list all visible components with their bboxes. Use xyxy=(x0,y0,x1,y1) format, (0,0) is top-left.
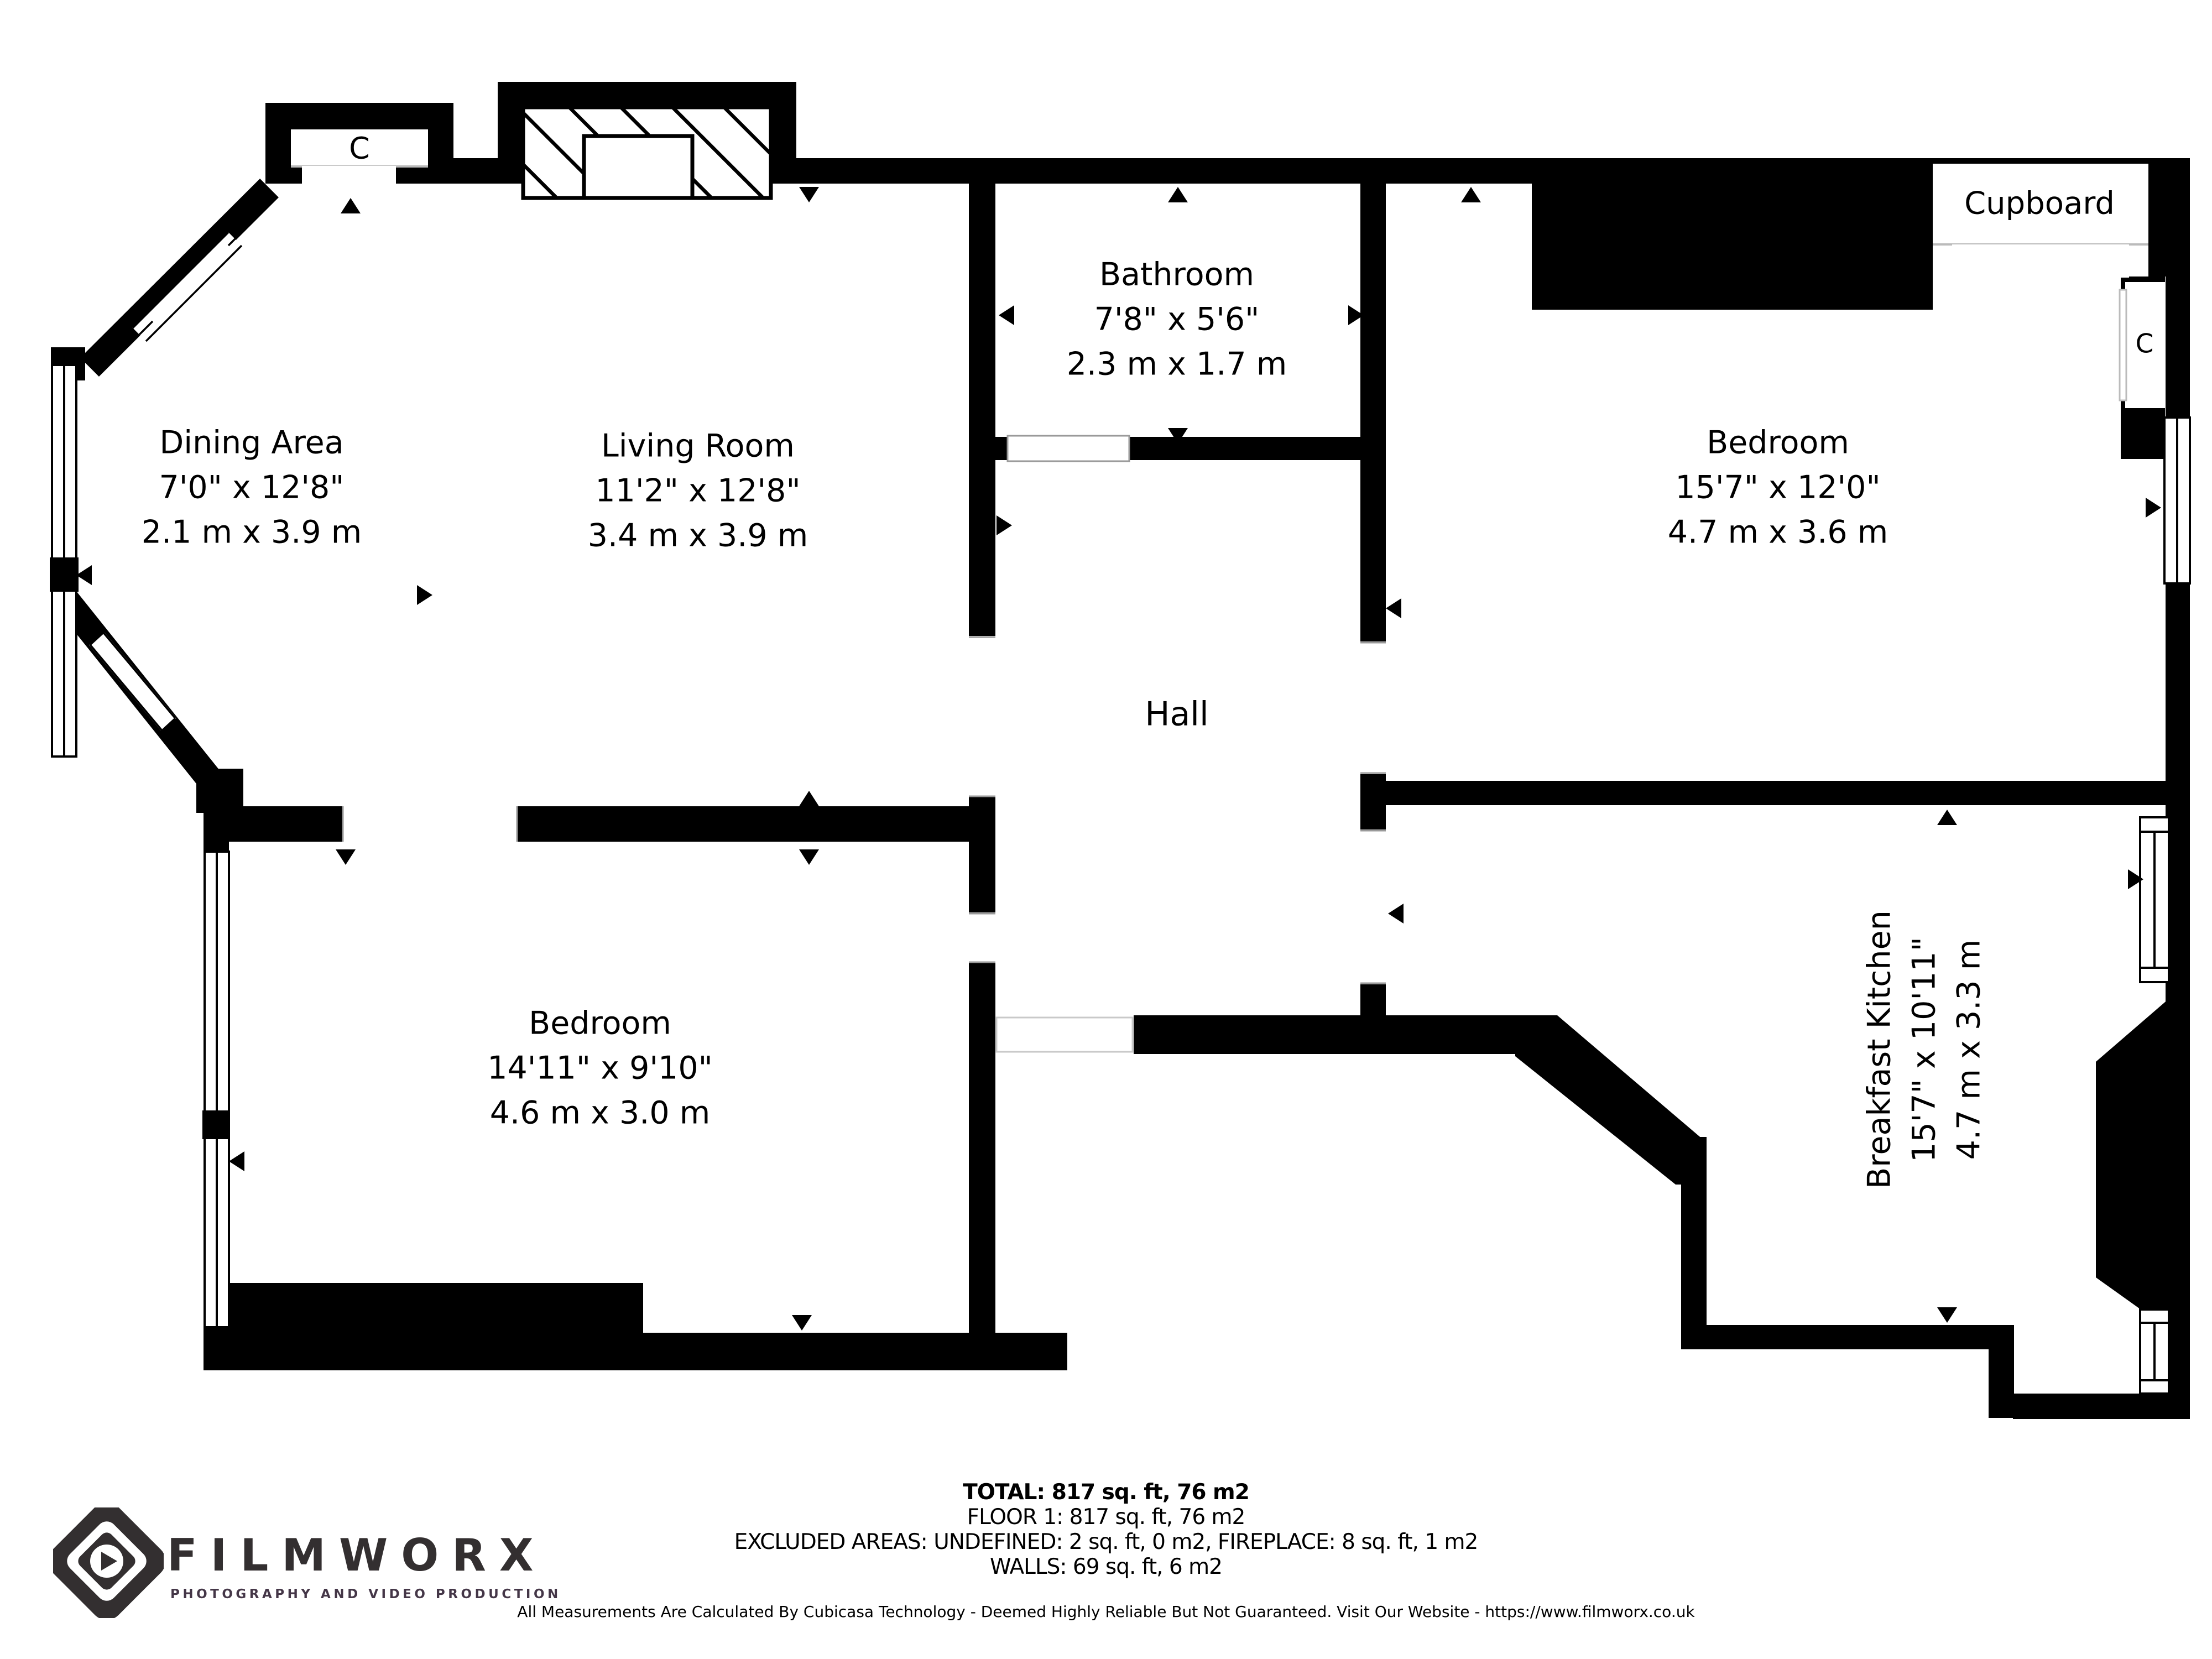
room-name: Living Room xyxy=(588,424,808,469)
bathroom-door xyxy=(1008,436,1129,461)
summary-total: TOTAL: 817 sq. ft, 76 m2 xyxy=(0,1480,2212,1505)
room-dims-m: 2.3 m x 1.7 m xyxy=(1067,342,1287,387)
room-dims-m: 2.1 m x 3.9 m xyxy=(142,510,362,555)
room-label-dining: Dining Area 7'0" x 12'8" 2.1 m x 3.9 m xyxy=(142,421,362,555)
room-dims-ft: 7'8" x 5'6" xyxy=(1067,298,1287,342)
bay-diagonal-window-lower xyxy=(97,639,169,724)
room-name: Dining Area xyxy=(142,421,362,466)
hall-right-wall xyxy=(1360,459,1386,641)
kitchen-diagonal-wall xyxy=(1515,1015,1707,1185)
brand-tagline: PHOTOGRAPHY AND VIDEO PRODUCTION xyxy=(170,1587,561,1601)
bathroom-right-wall xyxy=(1360,184,1386,459)
fireplace xyxy=(523,107,771,198)
door-openings xyxy=(343,436,1386,1052)
bottom-wall-right xyxy=(643,1333,1067,1370)
arrow-right-icon xyxy=(2146,498,2161,518)
arrow-left-icon xyxy=(76,565,92,585)
arrow-left-icon xyxy=(229,1151,244,1171)
room-name: Bathroom xyxy=(1067,253,1287,298)
arrow-up-icon xyxy=(1461,187,1481,202)
floorplan-drawing xyxy=(0,0,2212,1659)
room-name: Bedroom xyxy=(1668,421,1888,466)
bedroom-left-window-bar xyxy=(204,1112,229,1138)
filmworx-logo-icon xyxy=(53,1507,164,1618)
bedroom-north-mass xyxy=(1532,184,1933,310)
arrow-right-icon xyxy=(417,585,432,605)
arrow-down-icon xyxy=(799,187,819,202)
room-dims-ft: 15'7" x 10'11" xyxy=(1902,910,1947,1189)
room-name: Breakfast Kitchen xyxy=(1858,910,1902,1189)
room-dims-m: 4.7 m x 3.6 m xyxy=(1668,510,1888,555)
bottom-wall-left xyxy=(204,1283,643,1370)
bay-diagonal-upper xyxy=(90,188,269,367)
room-dims-m: 3.4 m x 3.9 m xyxy=(588,513,808,558)
room-label-kitchen: Breakfast Kitchen 15'7" x 10'11" 4.7 m x… xyxy=(1858,910,1992,1189)
filmworx-logo: FILMWORX PHOTOGRAPHY AND VIDEO PRODUCTIO… xyxy=(53,1507,551,1618)
room-dims-m: 4.6 m x 3.0 m xyxy=(487,1091,713,1135)
floorplan-page: Dining Area 7'0" x 12'8" 2.1 m x 3.9 m L… xyxy=(0,0,2212,1659)
room-label-hall: Hall xyxy=(1145,691,1208,738)
room-dims-ft: 15'7" x 12'0" xyxy=(1668,466,1888,510)
arrow-left-icon xyxy=(1388,904,1404,924)
arrow-up-icon xyxy=(1168,187,1188,202)
closet-right-door xyxy=(2120,290,2126,400)
arrow-up-icon xyxy=(1937,810,1957,825)
room-label-bathroom: Bathroom 7'8" x 5'6" 2.3 m x 1.7 m xyxy=(1067,253,1287,387)
room-label-living: Living Room 11'2" x 12'8" 3.4 m x 3.9 m xyxy=(588,424,808,559)
room-name: Hall xyxy=(1145,691,1208,738)
kitchen-chimney-bump xyxy=(2096,982,2189,1344)
arrow-down-icon xyxy=(336,849,356,865)
room-dims-ft: 11'2" x 12'8" xyxy=(588,469,808,514)
room-dims-m: 4.7 m x 3.3 m xyxy=(1947,910,1991,1189)
closet-top-left-door xyxy=(302,166,396,184)
cupboard-door xyxy=(1952,244,2129,278)
room-name: Bedroom xyxy=(487,1001,713,1046)
living-bedroom-wall xyxy=(517,806,994,842)
entrance-opening xyxy=(997,1018,1133,1052)
arrow-down-icon xyxy=(799,849,819,865)
arrow-left-icon xyxy=(999,305,1014,325)
cupboard-label: Cupboard xyxy=(1964,186,2115,222)
spine-wall-lower xyxy=(969,962,995,1349)
room-label-bedroom-right: Bedroom 15'7" x 12'0" 4.7 m x 3.6 m xyxy=(1668,421,1888,555)
room-dims-ft: 14'11" x 9'10" xyxy=(487,1046,713,1091)
bay-window-bar xyxy=(51,559,77,591)
arrow-up-icon xyxy=(799,791,819,806)
room-label-bedroom-bottom: Bedroom 14'11" x 9'10" 4.6 m x 3.0 m xyxy=(487,1001,713,1136)
room-dims-ft: 7'0" x 12'8" xyxy=(142,466,362,510)
closet-label-right: C xyxy=(2136,329,2154,359)
arrow-left-icon xyxy=(1386,598,1401,618)
bedroom-kitchen-wall xyxy=(1360,781,2190,805)
bathroom-bottom-wall xyxy=(1129,437,1386,460)
hall-bottom-wall xyxy=(1134,1015,1515,1054)
arrow-down-icon xyxy=(1937,1307,1957,1323)
brand-name: FILMWORX xyxy=(167,1530,547,1581)
arrow-down-icon xyxy=(792,1315,812,1331)
closet-label-top-left: C xyxy=(349,131,370,166)
arrow-right-icon xyxy=(997,515,1012,535)
spine-wall-upper xyxy=(969,184,995,636)
fireplace-hearth xyxy=(584,136,692,198)
arrow-up-icon xyxy=(341,198,361,213)
windows xyxy=(51,232,2190,1394)
